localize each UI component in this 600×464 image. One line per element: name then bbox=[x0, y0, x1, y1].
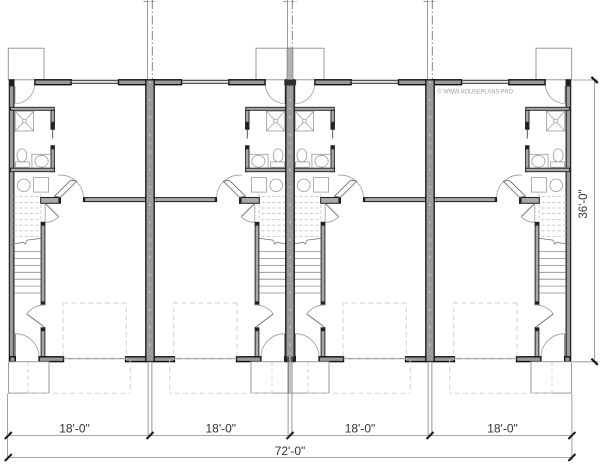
svg-text:36'-0": 36'-0" bbox=[578, 189, 590, 218]
svg-text:© WWW.HOUSEPLANS.PRO: © WWW.HOUSEPLANS.PRO bbox=[438, 88, 514, 96]
svg-text:18'-0": 18'-0" bbox=[345, 422, 376, 436]
svg-text:18'-0": 18'-0" bbox=[206, 422, 237, 436]
svg-text:72'-0": 72'-0" bbox=[275, 444, 306, 458]
svg-text:18'-0": 18'-0" bbox=[487, 422, 518, 436]
svg-text:18'-0": 18'-0" bbox=[59, 422, 90, 436]
